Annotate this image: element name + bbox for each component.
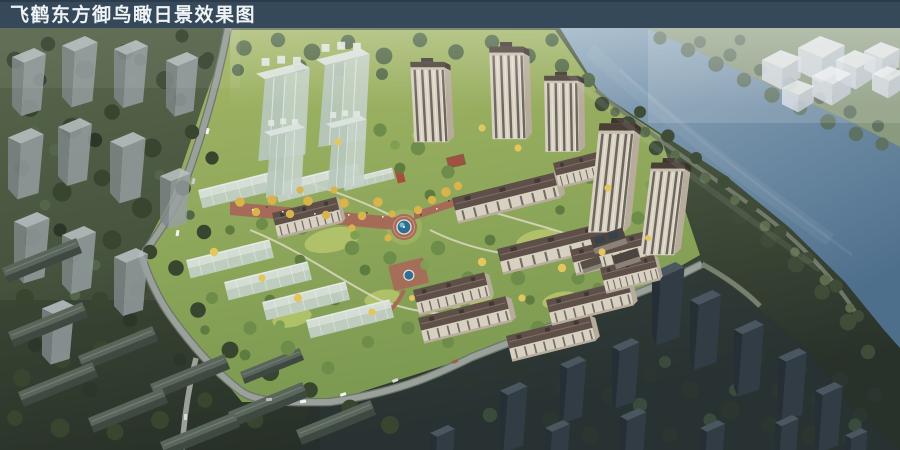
- title-banner: 飞鹤东方御鸟瞰日景效果图: [0, 0, 900, 28]
- page-title: 飞鹤东方御鸟瞰日景效果图: [10, 6, 256, 25]
- aerial-rendering-scene: [0, 0, 900, 450]
- rendering-viewport: 飞鹤东方御鸟瞰日景效果图: [0, 0, 900, 450]
